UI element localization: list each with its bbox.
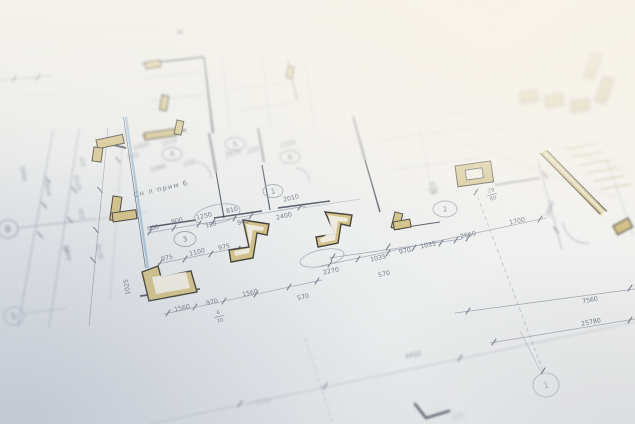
blueprint-photo-stage: 470 456ВБ1000157052010901202670120150044… (0, 0, 635, 424)
floor-plan-photo: 470 456ВБ1000157052010901202670120150044… (0, 0, 635, 424)
shade-bottom-right (0, 0, 635, 424)
